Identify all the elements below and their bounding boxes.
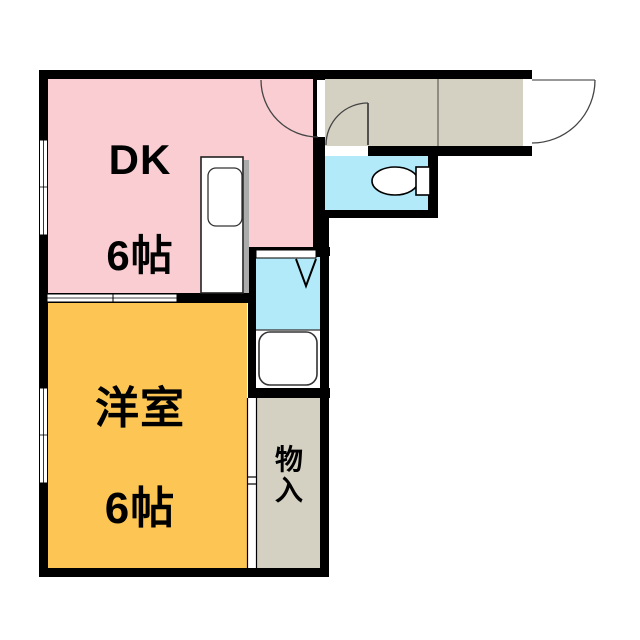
wall-washroom-left xyxy=(248,247,256,398)
room-entry-hall xyxy=(325,79,523,146)
room-bath xyxy=(256,330,320,388)
dk-name: DK xyxy=(109,136,172,183)
room-toilet xyxy=(325,156,428,210)
wall-left xyxy=(39,70,48,577)
wall-washroom-top xyxy=(248,247,330,256)
western-name: 洋室 xyxy=(95,384,185,433)
western-size: 6帖 xyxy=(105,484,175,533)
closet-door-icon xyxy=(248,398,256,568)
wall-hall-bottom xyxy=(313,146,532,156)
wall-bottom xyxy=(39,568,329,577)
wall-toilet-bottom xyxy=(313,210,438,218)
room-washroom xyxy=(256,256,320,330)
wall-toilet-right xyxy=(428,146,438,218)
label-dk: DK 6帖 xyxy=(55,136,225,280)
wall-dk-western-divider xyxy=(40,293,256,303)
dk-size: 6帖 xyxy=(106,232,173,279)
label-storage: 物入 xyxy=(272,444,306,506)
wall-bath-bottom xyxy=(248,388,330,398)
entrance-opening xyxy=(523,80,532,145)
entrance-door-arc-icon xyxy=(532,80,595,143)
floor-plan: DK 6帖 洋室 6帖 物入 xyxy=(0,0,640,640)
wall-top xyxy=(39,70,532,79)
label-western-room: 洋室 6帖 xyxy=(50,384,230,534)
